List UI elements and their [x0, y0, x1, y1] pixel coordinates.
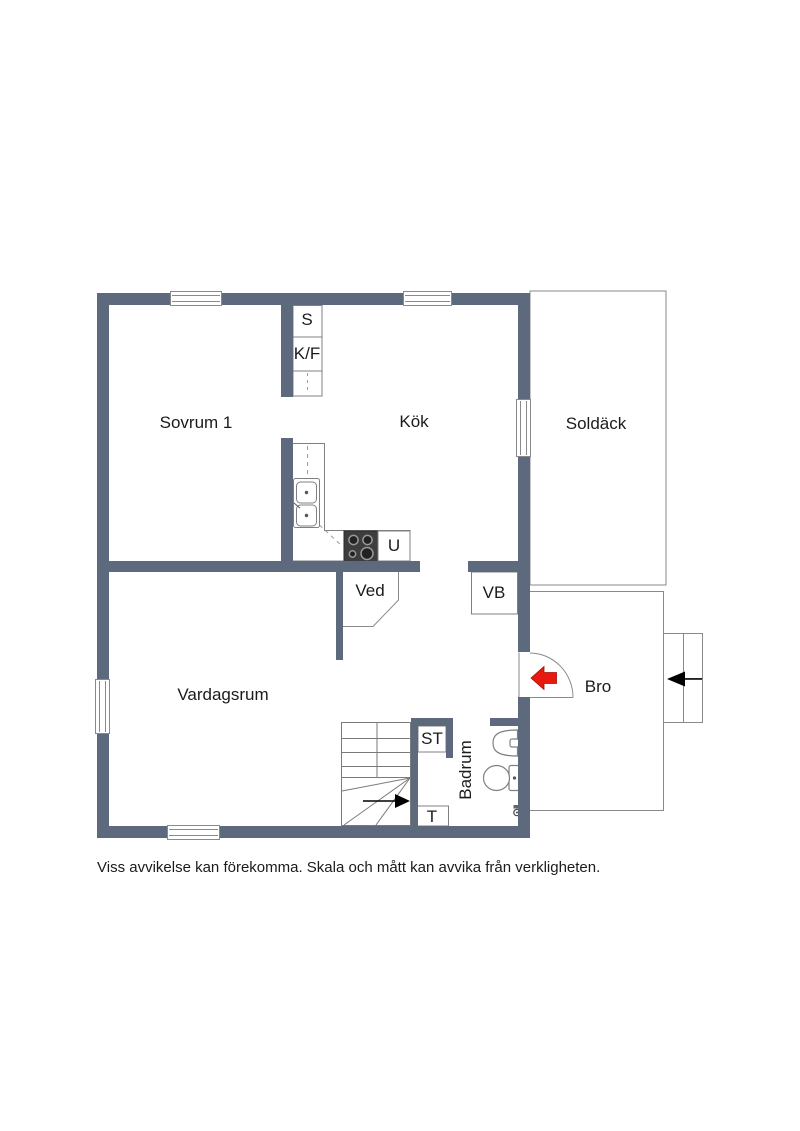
room-label-badrum: Badrum	[456, 740, 476, 800]
sink-icon	[294, 479, 320, 528]
washbasin-icon	[493, 730, 519, 756]
steps-arrow-icon	[667, 672, 702, 687]
window-pane	[520, 401, 527, 455]
disclaimer-text: Viss avvikelse kan förekomma. Skala och …	[97, 859, 600, 876]
label-closet-s: S	[301, 310, 312, 330]
wall-right-upper	[518, 293, 530, 652]
label-water-heater-vb: VB	[483, 583, 506, 603]
window-pane	[172, 295, 220, 302]
stairs-arrow-icon	[363, 794, 410, 808]
label-oven-u: U	[388, 536, 400, 556]
floor-plan-page: Sovrum 1 Kök Soldäck Vardagsrum Bro Badr…	[0, 0, 800, 1131]
bro-porch-outline	[530, 592, 664, 811]
wall-bottom	[97, 826, 530, 838]
wall-mid-horizontal	[109, 561, 420, 572]
stairs	[342, 723, 411, 826]
room-label-ved: Ved	[355, 581, 384, 601]
wall-bedroom-kitchen-lower	[281, 438, 293, 572]
wall-water-heater	[468, 561, 518, 572]
soldack-deck-outline	[530, 291, 666, 585]
wall-bathroom-top	[490, 718, 518, 726]
room-label-soldack: Soldäck	[566, 414, 626, 434]
wall-ved-stub	[336, 572, 343, 660]
room-label-bro: Bro	[585, 677, 611, 697]
window-bedroom-top	[170, 291, 222, 306]
label-laundry-t: T	[427, 807, 437, 827]
entrance-arrow-icon	[531, 667, 557, 690]
wall-bedroom-kitchen-upper	[281, 305, 293, 397]
window-livingroom-bottom	[167, 825, 220, 840]
label-cleaning-closet-st: ST	[421, 729, 443, 749]
window-kitchen-top	[403, 291, 452, 306]
window-pane	[169, 829, 218, 836]
wall-cleaning-closet-right	[446, 718, 453, 758]
room-label-vardagsrum: Vardagsrum	[177, 685, 268, 705]
wall-left	[97, 293, 109, 838]
room-label-kok: Kök	[399, 412, 428, 432]
stove-icon	[344, 531, 378, 562]
wall-right-lower	[518, 697, 530, 838]
bro-steps	[664, 634, 703, 723]
wall-top	[97, 293, 530, 305]
toilet-icon	[484, 766, 520, 791]
window-pane	[405, 295, 450, 302]
label-fridge-freezer: K/F	[294, 344, 320, 364]
window-pane	[99, 681, 106, 732]
window-livingroom-left	[95, 679, 110, 734]
entry-door-swing	[519, 653, 573, 698]
room-label-sovrum: Sovrum 1	[160, 413, 233, 433]
wall-stairs	[411, 718, 418, 826]
wall-cleaning-closet-top	[411, 718, 446, 726]
window-kitchen-right	[516, 399, 531, 457]
